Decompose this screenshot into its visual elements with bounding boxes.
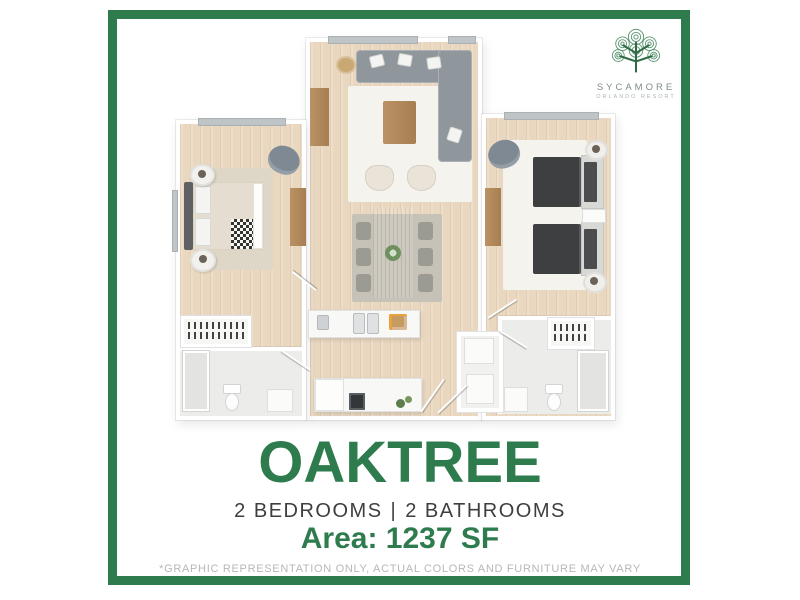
dining-chair — [418, 222, 433, 240]
pillow — [584, 162, 597, 202]
toilet — [547, 393, 561, 411]
dining-chair — [356, 274, 371, 292]
washer — [464, 338, 494, 364]
closet-hangers — [188, 332, 244, 339]
toilet — [225, 393, 239, 411]
plant — [396, 399, 405, 408]
bed-dark — [533, 224, 581, 274]
vase-decor — [592, 145, 600, 153]
plan-disclaimer: *GRAPHIC REPRESENTATION ONLY, ACTUAL COL… — [0, 563, 800, 575]
closet-hangers — [554, 334, 588, 341]
dining-chair — [418, 248, 433, 266]
closet-hangers — [554, 324, 588, 331]
vase-decor — [199, 255, 207, 263]
window-bar — [198, 118, 286, 126]
storage-shelf — [466, 374, 494, 404]
pillow — [426, 56, 442, 70]
bed-headboard — [184, 182, 193, 250]
lounge-chair — [365, 165, 394, 191]
plan-title: OAKTREE — [0, 434, 800, 492]
window-bar — [328, 36, 418, 44]
desk — [290, 188, 306, 246]
bathroom-cabinet — [267, 389, 293, 412]
table-centerpiece — [385, 245, 401, 261]
console-table — [310, 88, 329, 146]
desk — [485, 188, 501, 246]
vase-decor — [590, 277, 598, 285]
specs-separator: | — [391, 500, 398, 523]
vase-decor — [198, 170, 206, 178]
window-bar — [448, 36, 476, 44]
sycamore-tree-icon — [609, 26, 663, 80]
sink-basin — [353, 313, 365, 334]
plan-area: Area: 1237 SF — [0, 522, 800, 556]
pillow — [195, 218, 211, 246]
side-table — [336, 56, 356, 74]
bed-dark — [533, 157, 581, 207]
shower — [183, 351, 209, 411]
dining-chair — [356, 248, 371, 266]
dining-chair — [356, 222, 371, 240]
plant — [405, 396, 412, 403]
plan-specs: 2 BEDROOMS|2 BATHROOMS — [0, 500, 800, 523]
shower — [578, 351, 608, 411]
logo-brand-text: SYCAMORE — [588, 82, 684, 93]
coffee-table — [383, 101, 416, 144]
pillow — [195, 186, 211, 214]
lounge-chair — [407, 165, 436, 191]
logo-subtitle-text: ORLANDO RESORT — [588, 94, 684, 100]
bathroom-vanity — [504, 387, 528, 412]
bed-runner — [253, 183, 263, 249]
sectional-sofa-right — [438, 50, 472, 162]
stove — [349, 393, 365, 410]
pillow — [397, 53, 413, 67]
closet-hangers — [188, 322, 244, 329]
logo-sycamore: SYCAMORE ORLANDO RESORT — [588, 26, 684, 100]
window-bar — [172, 190, 178, 252]
window-bar — [504, 112, 599, 120]
bedrooms-count: 2 BEDROOMS — [234, 500, 382, 522]
bathrooms-count: 2 BATHROOMS — [405, 500, 566, 522]
sink-basin — [367, 313, 379, 334]
kitchen-item — [317, 315, 329, 330]
dining-chair — [418, 274, 433, 292]
cutting-board — [389, 314, 407, 330]
pillow — [584, 229, 597, 269]
fridge — [315, 379, 344, 411]
nightstand — [582, 209, 606, 223]
page: SYCAMORE ORLANDO RESORT — [0, 0, 800, 600]
